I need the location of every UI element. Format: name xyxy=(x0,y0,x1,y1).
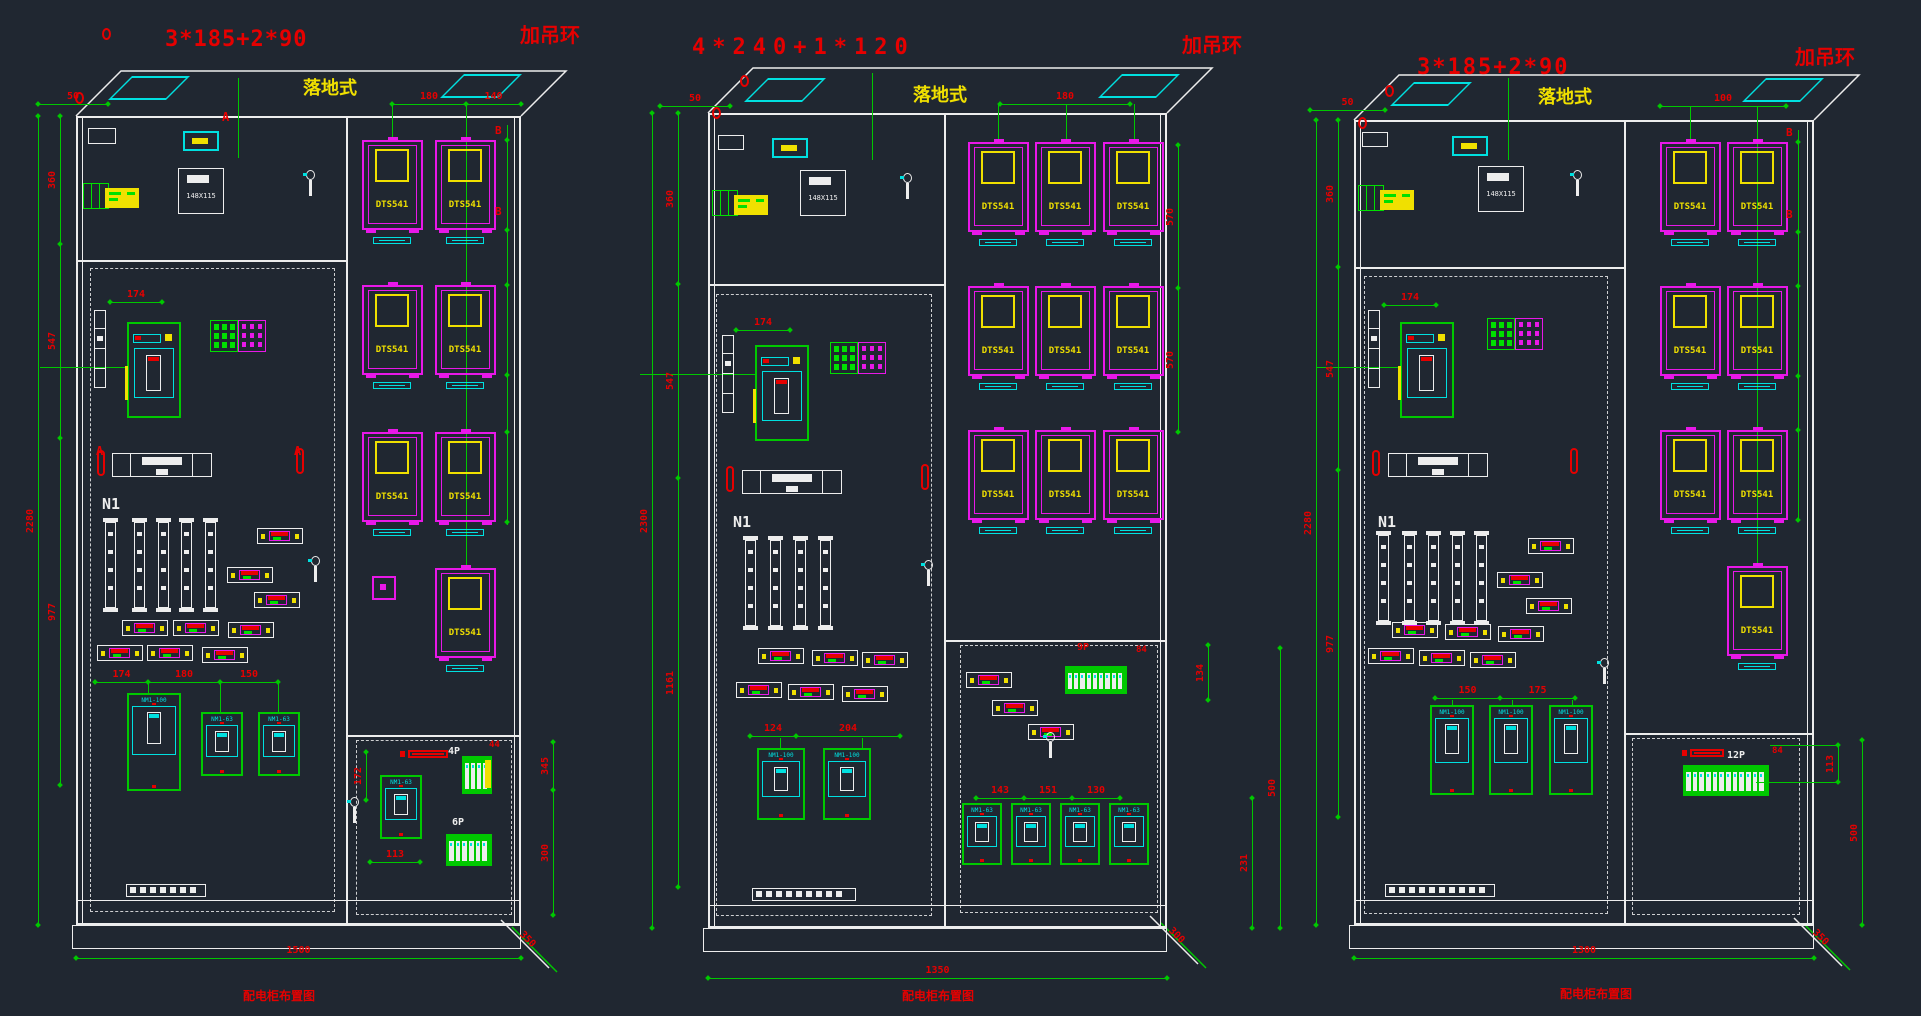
meter-terminal-bar xyxy=(1052,242,1078,243)
fuse-dot xyxy=(1423,656,1427,661)
combo-cell xyxy=(834,355,839,361)
line xyxy=(1252,798,1253,928)
dimension-label: 84 xyxy=(1772,746,1783,757)
mccb-dot xyxy=(1127,859,1131,862)
line xyxy=(392,104,521,105)
cabinet-1-mount-type: 落地式 xyxy=(303,79,357,99)
line xyxy=(1406,454,1407,476)
fuse-dot xyxy=(231,573,235,578)
strip-mark xyxy=(773,568,778,572)
fuse-dot xyxy=(1396,628,1400,633)
line xyxy=(728,191,729,215)
dimension-label: 1300 xyxy=(1572,945,1596,957)
combo-cell xyxy=(842,346,847,352)
meter-window xyxy=(1116,439,1150,472)
meter-foot xyxy=(1150,518,1160,523)
combo-cell xyxy=(1519,340,1523,345)
meter-terminal-bar xyxy=(1677,386,1703,387)
meter-window xyxy=(981,295,1015,328)
breaker-dot xyxy=(776,380,787,384)
meter-foot xyxy=(1082,518,1092,523)
strip-mark xyxy=(796,891,802,897)
combo-cell xyxy=(862,346,866,351)
meter-label: DTS541 xyxy=(1741,626,1774,637)
meter-tab xyxy=(461,565,471,569)
meter-foot xyxy=(1082,374,1092,379)
neutral-label: N1 xyxy=(102,496,120,513)
fuse-fill xyxy=(161,649,178,653)
strip-mark xyxy=(1389,887,1395,893)
combo-cell xyxy=(834,346,839,352)
strip-mark xyxy=(1399,887,1405,893)
strip-tab xyxy=(743,536,758,540)
strip-tab xyxy=(203,608,218,612)
meter-label: DTS541 xyxy=(449,345,482,356)
fuse-dot xyxy=(792,690,796,695)
din-module-dot xyxy=(1113,675,1115,678)
component-mark xyxy=(738,205,747,208)
meter-terminal-bar xyxy=(985,386,1011,387)
dimension-label: 50 xyxy=(67,91,79,103)
fuse-dot xyxy=(996,706,1000,711)
combo-cell xyxy=(850,346,855,352)
door-handle-icon xyxy=(1576,180,1579,196)
dimension-label: 50 xyxy=(1341,97,1353,109)
line xyxy=(1369,348,1379,349)
door-handle-icon xyxy=(1603,668,1606,684)
meter-window xyxy=(1740,151,1774,184)
cabinet-2-cable-spec: 4*240+1*120 xyxy=(692,36,915,60)
meter-foot xyxy=(482,228,492,233)
line xyxy=(1208,645,1209,700)
fuse-dot xyxy=(160,626,164,631)
din-module-dot xyxy=(1727,774,1729,777)
strip-mark xyxy=(184,586,189,590)
fuse-mark xyxy=(982,681,990,684)
meter-terminal-bar xyxy=(379,532,405,533)
strip-mark xyxy=(1419,887,1425,893)
line xyxy=(723,353,733,354)
cabinet-2-hoist-note: 加吊环 xyxy=(1182,34,1242,56)
meter-foot xyxy=(1664,374,1674,379)
component-mark xyxy=(1384,200,1393,203)
strip-mark xyxy=(776,891,782,897)
dimension-label: 134 xyxy=(1195,663,1207,681)
dimension-label: 150 xyxy=(240,669,258,681)
fuse-fill xyxy=(241,571,258,575)
door-handle-icon xyxy=(1046,732,1055,742)
strip-mark xyxy=(1407,599,1412,603)
line xyxy=(1374,186,1375,210)
door-handle-icon xyxy=(903,173,912,183)
din-module-dot xyxy=(1700,774,1702,777)
strip-mark xyxy=(1429,887,1435,893)
strip-tab xyxy=(1376,531,1391,535)
strip-mark xyxy=(1455,581,1460,585)
combo-cell xyxy=(842,364,847,370)
door-handle-icon xyxy=(303,173,307,176)
door-handle-icon xyxy=(314,566,317,582)
strip-mark xyxy=(1407,563,1412,567)
line xyxy=(822,471,823,493)
meter-tab xyxy=(1753,427,1763,431)
strip-mark xyxy=(1479,599,1484,603)
meter-foot xyxy=(1774,518,1784,523)
fuse-dot xyxy=(101,651,105,656)
mccb-mark xyxy=(977,824,987,828)
insulator xyxy=(726,466,734,492)
neutral-label: N1 xyxy=(1378,514,1396,531)
busbar-mark xyxy=(156,469,168,475)
meter-foot xyxy=(1731,518,1741,523)
line xyxy=(514,118,515,923)
meter-foot xyxy=(1731,654,1741,659)
fuse-dot xyxy=(261,534,265,539)
cabinet-3-hoist-note: 加吊环 xyxy=(1795,46,1855,68)
line xyxy=(708,978,1167,979)
fuse-fill xyxy=(750,686,767,690)
dimension-label: 113 xyxy=(386,849,404,861)
fuse-dot xyxy=(740,688,744,693)
fuse-mark xyxy=(858,695,866,698)
mccb-dot xyxy=(1509,789,1513,792)
fuse-fill xyxy=(1511,576,1528,580)
meter-terminal-bar xyxy=(1677,530,1703,531)
fuse-fill xyxy=(876,656,893,660)
meter-window xyxy=(448,441,482,474)
strip-mark xyxy=(823,550,828,554)
combo-cell xyxy=(258,333,262,338)
strip-mark xyxy=(140,887,146,893)
mccb-dot xyxy=(399,833,403,836)
strip-mark xyxy=(137,550,142,554)
meter-terminal-bar xyxy=(1744,386,1770,387)
fuse-fill xyxy=(856,690,873,694)
lifting-ring-icon xyxy=(1358,117,1367,129)
meter-foot xyxy=(1150,374,1160,379)
fuse-mark xyxy=(113,654,121,657)
strip-tab xyxy=(132,608,147,612)
combo-cell xyxy=(250,324,254,329)
combo-cell xyxy=(214,342,219,348)
line xyxy=(1160,115,1161,926)
door-handle-icon xyxy=(927,570,930,586)
strip-mark xyxy=(836,891,842,897)
strip-mark xyxy=(150,887,156,893)
strip-mark xyxy=(208,532,213,536)
fuse-fill xyxy=(1459,628,1476,632)
strip-mark xyxy=(1455,545,1460,549)
din-module-dot xyxy=(450,843,452,846)
door-handle-icon xyxy=(1043,735,1047,738)
strip-mark xyxy=(823,568,828,572)
meter-label: DTS541 xyxy=(376,492,409,503)
meter-label: DTS541 xyxy=(1049,202,1082,213)
meter-terminal-bar xyxy=(1052,386,1078,387)
cabinet-3-bottom-note: 配电柜布置图 xyxy=(1560,987,1632,1001)
meter-label: DTS541 xyxy=(1117,346,1150,357)
combo-cell xyxy=(250,333,254,338)
fuse-fill xyxy=(242,626,259,630)
combo-cell xyxy=(230,324,235,330)
line xyxy=(1798,130,1799,520)
meter-window xyxy=(375,149,409,182)
meter-window xyxy=(1048,151,1082,184)
strip-mark xyxy=(748,568,753,572)
line xyxy=(652,113,653,928)
fuse-mark xyxy=(273,537,281,540)
dimension-label: 180 xyxy=(175,669,193,681)
mccb-dot xyxy=(220,770,224,773)
strip-mark xyxy=(1469,887,1475,893)
strip-mark xyxy=(748,550,753,554)
dimension-label: 547 xyxy=(665,372,677,390)
line xyxy=(723,393,733,394)
meter-label: DTS541 xyxy=(1674,490,1707,501)
fuse-mark xyxy=(804,693,812,696)
dimension-label: 50 xyxy=(689,93,701,105)
fuse-dot xyxy=(774,688,778,693)
meter-window xyxy=(1048,439,1082,472)
strip-mark xyxy=(161,586,166,590)
mccb-dot xyxy=(399,785,403,787)
fuse-fill xyxy=(1540,602,1557,606)
meter-tab xyxy=(1753,283,1763,287)
component-mark xyxy=(1402,194,1410,197)
strip-tab xyxy=(743,626,758,630)
line xyxy=(1356,267,1624,269)
fuse-mark xyxy=(828,659,836,662)
meter-tab xyxy=(1061,427,1071,431)
strip-mark xyxy=(773,550,778,554)
fuse-fill xyxy=(1382,652,1399,656)
combo-cell xyxy=(1519,322,1523,327)
strip-mark xyxy=(786,891,792,897)
combo-cell xyxy=(1499,340,1504,346)
meter-window xyxy=(1116,151,1150,184)
door-handle-icon xyxy=(906,183,909,199)
combo-cell xyxy=(222,333,227,339)
strip-mark xyxy=(130,887,136,893)
fuse-dot xyxy=(796,654,800,659)
group-label: 4P xyxy=(448,746,460,758)
fuse-mark xyxy=(163,654,171,657)
busbar-bar xyxy=(1418,457,1458,465)
combo-cell xyxy=(870,364,874,369)
fuse-dot xyxy=(1566,544,1570,549)
meter-terminal-bar xyxy=(985,530,1011,531)
terminal-rail xyxy=(1368,310,1380,388)
din-module-dot xyxy=(1720,774,1722,777)
dimension-label: 547 xyxy=(1325,359,1337,377)
nameplate-bar xyxy=(809,177,831,185)
meter-foot xyxy=(1731,374,1741,379)
insulator xyxy=(1372,450,1380,476)
fuse-dot xyxy=(135,651,139,656)
fuse-dot xyxy=(1372,654,1376,659)
fuse-dot xyxy=(265,573,269,578)
strip-tab xyxy=(1376,621,1391,625)
meter-window xyxy=(375,294,409,327)
combo-cell xyxy=(222,324,227,330)
line xyxy=(1369,328,1379,329)
meter-foot xyxy=(1039,374,1049,379)
fuse-dot xyxy=(846,692,850,697)
line xyxy=(1066,104,1067,144)
fuse-dot xyxy=(1508,658,1512,663)
meter-label: DTS541 xyxy=(1674,346,1707,357)
strip-mark xyxy=(766,891,772,897)
meter-foot xyxy=(409,228,419,233)
rail-mark xyxy=(97,336,103,341)
meter-foot xyxy=(972,518,982,523)
line xyxy=(1310,110,1385,111)
strip-tab xyxy=(793,536,808,540)
meter-foot xyxy=(439,656,449,661)
strip-mark xyxy=(1407,545,1412,549)
busbar-mark xyxy=(1432,469,1444,475)
dimension-label: 360 xyxy=(1325,184,1337,202)
fuse-dot xyxy=(177,626,181,631)
fuse-dot xyxy=(1535,578,1539,583)
mccb-dot xyxy=(980,813,984,815)
line xyxy=(1624,122,1626,923)
strip-mark xyxy=(773,604,778,608)
combo-cell xyxy=(214,333,219,339)
din-module-dot xyxy=(466,765,468,768)
fuse-dot xyxy=(1004,678,1008,683)
meter-label: DTS541 xyxy=(1741,346,1774,357)
dimension-label: 174 xyxy=(112,669,130,681)
fuse-dot xyxy=(970,678,974,683)
meter-tab xyxy=(1753,139,1763,143)
door-handle-icon xyxy=(1049,742,1052,758)
line xyxy=(130,454,131,476)
meter-window xyxy=(1116,295,1150,328)
terminal-rail xyxy=(94,310,106,388)
door-handle-icon xyxy=(306,170,315,180)
meter-tab xyxy=(994,427,1004,431)
meter-label: DTS541 xyxy=(1117,490,1150,501)
group-label: 9P xyxy=(1077,642,1089,654)
din-module-dot xyxy=(1069,675,1071,678)
mccb-dot xyxy=(220,722,224,724)
dimension-label: 100 xyxy=(1714,93,1732,105)
line xyxy=(148,684,149,693)
meter-foot xyxy=(366,520,376,525)
combo-cell xyxy=(250,342,254,347)
line xyxy=(38,116,39,925)
strip-mark xyxy=(180,887,186,893)
door-handle-icon xyxy=(311,556,320,566)
dimension-label: 174 xyxy=(127,289,145,301)
line xyxy=(40,367,128,368)
mccb-dot xyxy=(779,758,783,760)
meter-foot xyxy=(1664,230,1674,235)
meter-tab xyxy=(1686,427,1696,431)
insulator xyxy=(296,448,304,474)
fuse-dot xyxy=(1501,578,1505,583)
component-mark xyxy=(109,192,121,195)
strip-mark xyxy=(1455,563,1460,567)
din-accent xyxy=(485,760,491,788)
meter-window xyxy=(1673,151,1707,184)
din-module-dot xyxy=(1747,774,1749,777)
strip-mark xyxy=(161,532,166,536)
indicator-bar xyxy=(192,138,208,144)
meter-foot xyxy=(1707,230,1717,235)
strip-mark xyxy=(823,604,828,608)
meter-label: DTS541 xyxy=(1117,202,1150,213)
strip-tab xyxy=(1426,531,1441,535)
combo-cell xyxy=(1535,340,1539,345)
line xyxy=(278,684,279,712)
mccb-mark xyxy=(1075,824,1085,828)
fuse-fill xyxy=(187,624,204,628)
dimension-label: 1500 xyxy=(286,945,310,957)
din-module-dot xyxy=(1075,675,1077,678)
fuse-dot xyxy=(266,628,270,633)
meter-tab xyxy=(388,429,398,433)
fuse-fill xyxy=(1006,704,1023,708)
meter-tab xyxy=(994,283,1004,287)
meter-terminal-bar xyxy=(1120,242,1146,243)
indicator-bar xyxy=(781,145,797,151)
meter-window xyxy=(1740,575,1774,608)
combo-cell xyxy=(842,355,847,361)
dimension-label: 500 xyxy=(1267,779,1279,797)
line xyxy=(1366,186,1367,210)
fuse-dot xyxy=(1066,730,1070,735)
fuse-mark xyxy=(1486,661,1494,664)
fuse-mark xyxy=(1544,547,1552,550)
fuse-fill xyxy=(268,596,285,600)
fuse-dot xyxy=(1502,632,1506,637)
indicator-bar xyxy=(1461,143,1477,149)
breaker-dot xyxy=(763,359,769,363)
busbar-mark xyxy=(786,486,798,492)
line xyxy=(95,682,278,683)
meter-tab xyxy=(1129,139,1139,143)
meter-window xyxy=(448,149,482,182)
line xyxy=(110,302,162,303)
meter-label: DTS541 xyxy=(376,200,409,211)
fuse-dot xyxy=(1530,604,1534,609)
meter-label: DTS541 xyxy=(982,490,1015,501)
combo-cell xyxy=(1507,331,1512,337)
strip-mark xyxy=(798,604,803,608)
din-module-dot xyxy=(478,765,480,768)
fuse-fill xyxy=(1406,626,1423,630)
meter-foot xyxy=(409,520,419,525)
fuse-fill xyxy=(111,649,128,653)
rail-mark xyxy=(1371,336,1377,341)
strip-mark xyxy=(108,550,113,554)
strip-tab xyxy=(156,608,171,612)
dimension-label: 44 xyxy=(489,740,500,751)
door-handle-icon xyxy=(1570,173,1574,176)
meter-terminal-bar xyxy=(379,240,405,241)
breaker-mark xyxy=(1438,334,1445,341)
meter-label: DTS541 xyxy=(982,346,1015,357)
meter-window xyxy=(981,151,1015,184)
strip-mark xyxy=(160,887,166,893)
strip-mark xyxy=(208,586,213,590)
combo-cell xyxy=(1507,340,1512,346)
combo-cell xyxy=(242,342,246,347)
dimension-label: 570 xyxy=(1165,207,1177,225)
din-module-dot xyxy=(1106,675,1108,678)
